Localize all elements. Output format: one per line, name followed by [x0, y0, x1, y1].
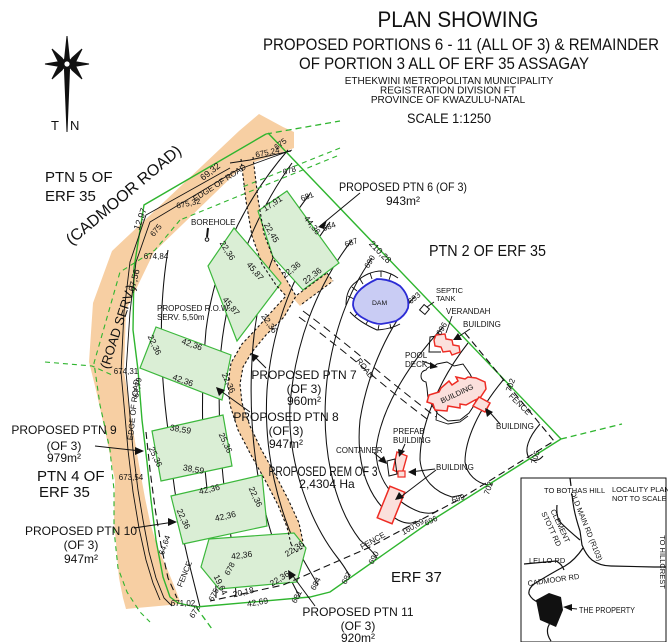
svg-text:SCALE 1:1250: SCALE 1:1250	[407, 111, 491, 126]
svg-text:BUILDING: BUILDING	[463, 320, 501, 329]
svg-text:TO HILLCREST: TO HILLCREST	[658, 535, 667, 589]
svg-text:947m²: 947m²	[269, 437, 303, 451]
svg-text:N: N	[70, 118, 79, 133]
svg-text:PROPOSED PTN 7: PROPOSED PTN 7	[251, 368, 357, 382]
svg-text:PROPOSED R.O.W.: PROPOSED R.O.W.	[157, 304, 230, 313]
svg-text:PLAN SHOWING: PLAN SHOWING	[378, 7, 539, 32]
svg-text:960m²: 960m²	[287, 394, 321, 408]
svg-text:PROPOSED PTN 11: PROPOSED PTN 11	[302, 605, 413, 619]
svg-text:NOT TO SCALE: NOT TO SCALE	[612, 494, 667, 503]
svg-text:ERF 37: ERF 37	[391, 569, 442, 586]
svg-text:DAM: DAM	[372, 300, 387, 307]
svg-text:CONTAINER: CONTAINER	[336, 446, 383, 455]
svg-text:PTN 4 OF: PTN 4 OF	[37, 468, 105, 485]
svg-text:BUILDING: BUILDING	[496, 422, 534, 431]
svg-text:PTN 5 OF: PTN 5 OF	[45, 169, 113, 186]
svg-text:(OF 3): (OF 3)	[64, 538, 99, 552]
svg-text:PREFAB: PREFAB	[393, 427, 425, 436]
svg-text:SERV. 5,50m: SERV. 5,50m	[157, 313, 205, 322]
svg-text:ERF 35: ERF 35	[45, 188, 96, 205]
svg-text:T: T	[51, 118, 59, 133]
svg-text:LOCALITY PLAN: LOCALITY PLAN	[612, 485, 668, 494]
svg-text:920m²: 920m²	[341, 631, 375, 642]
svg-text:979m²: 979m²	[47, 451, 81, 465]
svg-text:TANK: TANK	[436, 294, 455, 303]
svg-text:BOREHOLE: BOREHOLE	[191, 218, 235, 227]
svg-text:PROVINCE OF KWAZULU-NATAL: PROVINCE OF KWAZULU-NATAL	[371, 95, 526, 106]
svg-text:THE PROPERTY: THE PROPERTY	[579, 606, 636, 615]
svg-text:PROPOSED PTN 6 (OF 3): PROPOSED PTN 6 (OF 3)	[339, 180, 467, 194]
svg-text:OF PORTION 3 ALL OF ERF 35 ASS: OF PORTION 3 ALL OF ERF 35 ASSAGAY	[299, 54, 589, 73]
svg-text:947m²: 947m²	[64, 552, 98, 566]
svg-text:674,84: 674,84	[144, 252, 169, 261]
svg-text:ERF 35: ERF 35	[39, 484, 90, 501]
svg-text:PROPOSED PTN 10: PROPOSED PTN 10	[25, 524, 137, 538]
svg-text:BUILDING: BUILDING	[393, 436, 431, 445]
svg-text:PTN 2 OF ERF 35: PTN 2 OF ERF 35	[429, 243, 546, 260]
svg-text:VERANDAH: VERANDAH	[446, 307, 491, 316]
svg-text:POOL: POOL	[405, 351, 428, 360]
svg-text:673,54: 673,54	[119, 473, 144, 482]
svg-text:LELLO RD: LELLO RD	[529, 556, 566, 565]
svg-text:PROPOSED PORTIONS 6 - 11 (ALL: PROPOSED PORTIONS 6 - 11 (ALL OF 3) & RE…	[263, 35, 659, 54]
svg-text:PROPOSED PTN 8: PROPOSED PTN 8	[233, 410, 339, 424]
svg-text:674,31: 674,31	[114, 367, 139, 376]
svg-text:2,4304 Ha: 2,4304 Ha	[299, 477, 355, 491]
svg-text:BUILDING: BUILDING	[436, 463, 474, 472]
svg-text:(OF 3): (OF 3)	[269, 424, 304, 438]
svg-text:943m²: 943m²	[386, 194, 420, 208]
svg-text:PROPOSED PTN 9: PROPOSED PTN 9	[11, 423, 117, 437]
